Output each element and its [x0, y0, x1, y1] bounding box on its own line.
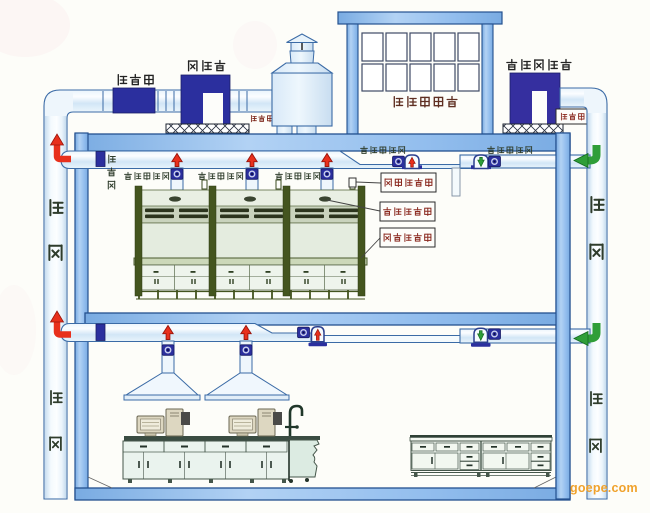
svg-text:goepe.com: goepe.com: [570, 481, 638, 495]
